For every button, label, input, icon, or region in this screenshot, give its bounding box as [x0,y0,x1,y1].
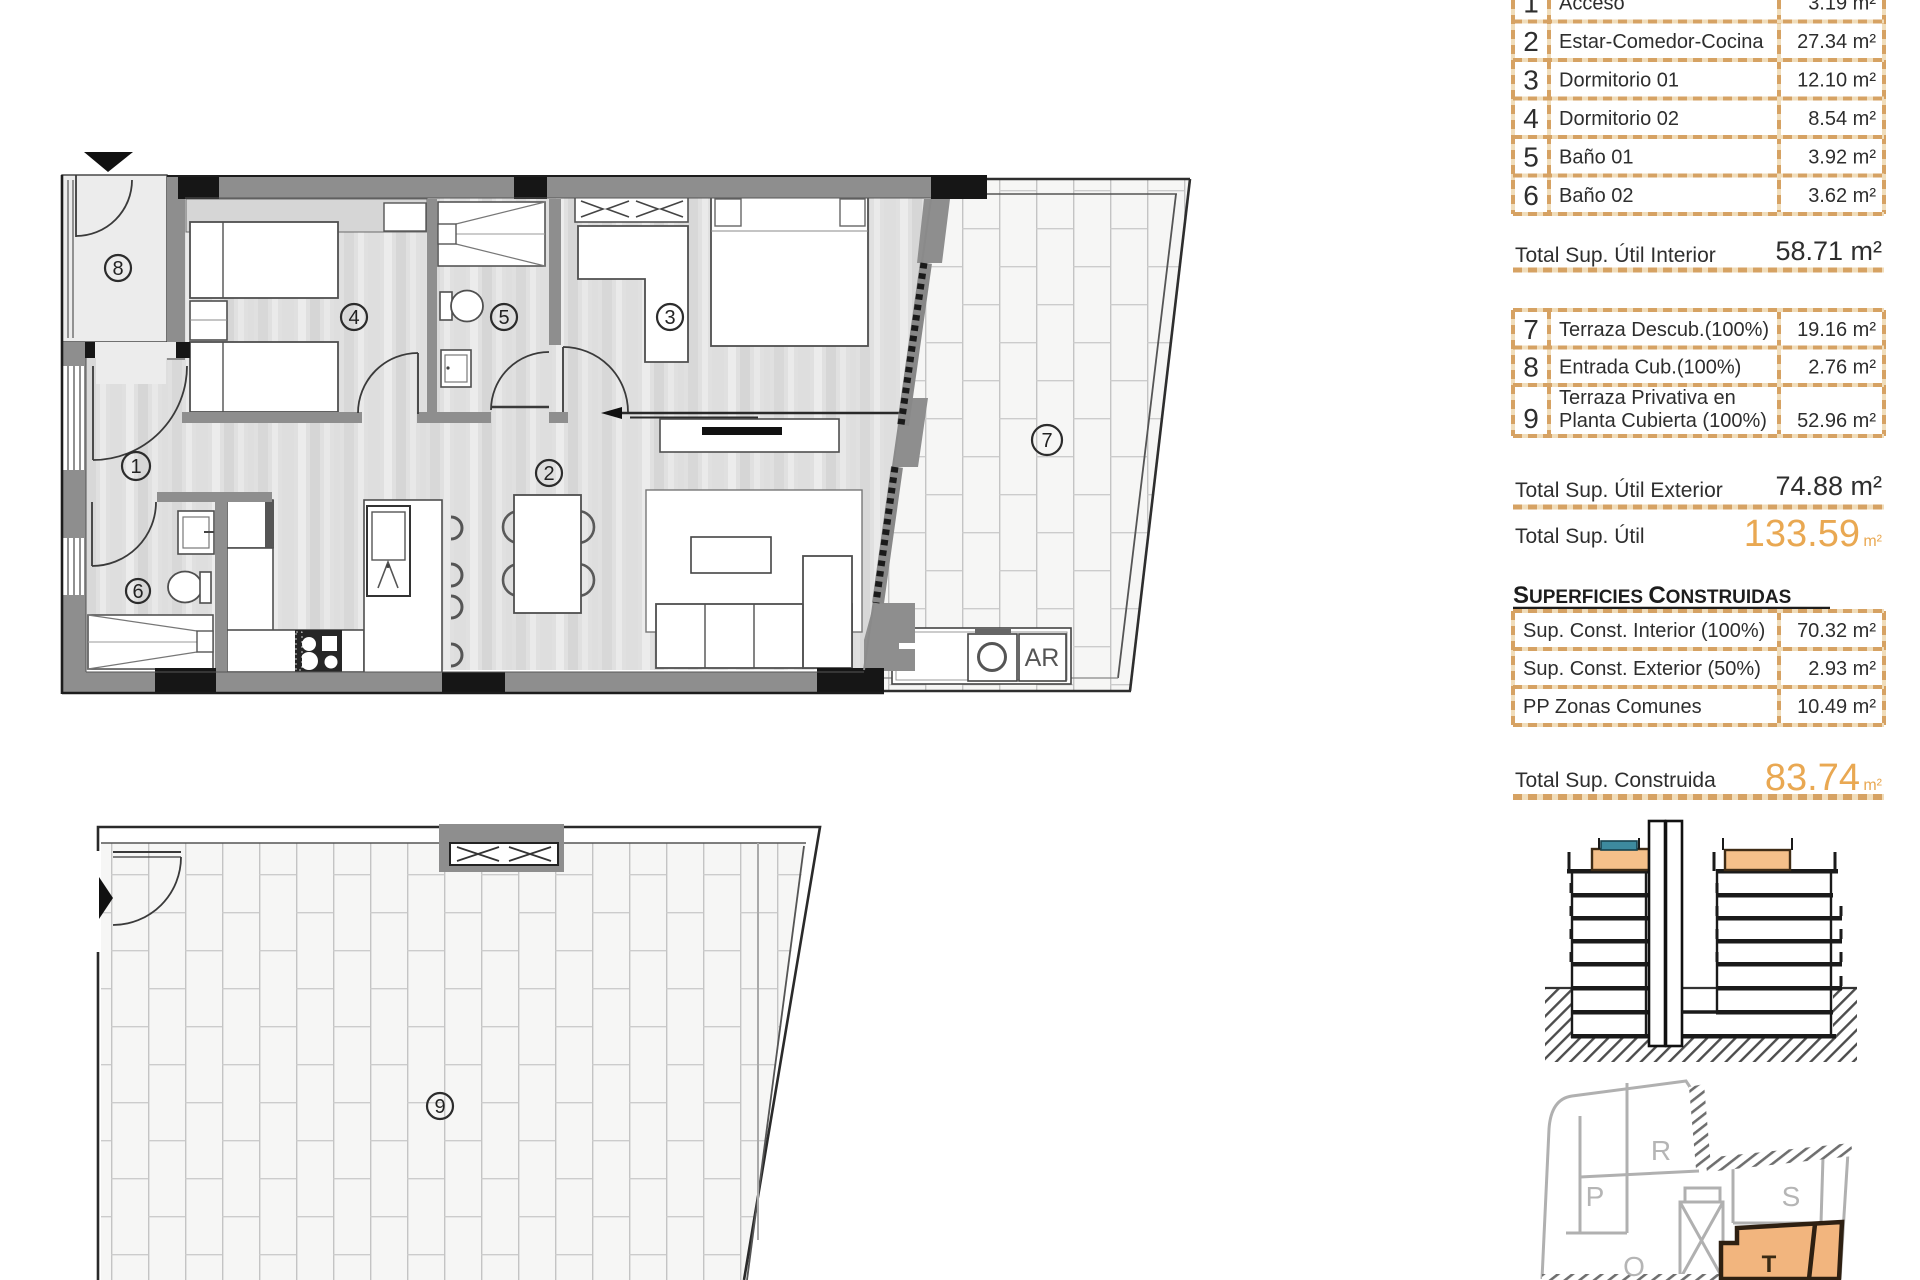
svg-text:Acceso: Acceso [1559,0,1625,14]
svg-text:Baño 01: Baño 01 [1559,146,1634,168]
svg-text:1: 1 [1523,0,1539,18]
svg-text:m²: m² [1863,777,1882,794]
svg-text:P: P [1586,1181,1605,1212]
svg-text:3.92 m²: 3.92 m² [1808,146,1876,168]
svg-text:m²: m² [1863,533,1882,550]
svg-text:52.96 m²: 52.96 m² [1797,410,1876,432]
svg-text:SUPERFICIES CONSTRUIDAS: SUPERFICIES CONSTRUIDAS [1513,582,1791,609]
svg-text:2: 2 [1523,26,1539,57]
svg-text:Total Sup. Útil Interior: Total Sup. Útil Interior [1515,244,1716,267]
svg-text:58.71 m²: 58.71 m² [1775,236,1882,266]
svg-text:T: T [1762,1251,1777,1278]
svg-text:S: S [1782,1181,1801,1212]
svg-text:7: 7 [1041,430,1052,452]
svg-text:3.62 m²: 3.62 m² [1808,185,1876,207]
svg-text:Total Sup. Útil Exterior: Total Sup. Útil Exterior [1515,479,1723,502]
svg-text:PP Zonas Comunes: PP Zonas Comunes [1523,696,1702,718]
svg-text:3.19 m²: 3.19 m² [1808,0,1876,14]
svg-text:4: 4 [348,307,359,329]
svg-text:AR: AR [1025,644,1060,672]
svg-text:R: R [1651,1135,1671,1166]
svg-text:8: 8 [1523,351,1539,382]
svg-text:3: 3 [1523,64,1539,95]
svg-text:74.88 m²: 74.88 m² [1775,471,1882,501]
svg-text:10.49 m²: 10.49 m² [1797,696,1876,718]
svg-text:5: 5 [498,307,509,329]
svg-text:3: 3 [664,307,675,329]
svg-text:2.93 m²: 2.93 m² [1808,658,1876,680]
svg-text:9: 9 [434,1096,445,1118]
svg-text:Terraza Descub.(100%): Terraza Descub.(100%) [1559,319,1769,341]
svg-text:Entrada Cub.(100%): Entrada Cub.(100%) [1559,356,1741,378]
svg-text:7: 7 [1523,314,1539,345]
svg-text:Sup. Const. Exterior (50%): Sup. Const. Exterior (50%) [1523,658,1761,680]
svg-text:12.10 m²: 12.10 m² [1797,69,1876,91]
svg-text:27.34 m²: 27.34 m² [1797,31,1876,53]
svg-text:Dormitorio 02: Dormitorio 02 [1559,108,1679,130]
svg-text:Baño 02: Baño 02 [1559,185,1634,207]
svg-text:1: 1 [130,456,141,478]
svg-text:2: 2 [543,463,554,485]
svg-text:83.74: 83.74 [1765,757,1860,799]
svg-text:6: 6 [1523,180,1539,211]
svg-text:2.76 m²: 2.76 m² [1808,356,1876,378]
svg-text:4: 4 [1523,103,1539,134]
svg-text:Total Sup. Construida: Total Sup. Construida [1515,769,1716,792]
svg-text:Total Sup. Útil: Total Sup. Útil [1515,525,1645,548]
svg-text:8.54 m²: 8.54 m² [1808,108,1876,130]
svg-text:9: 9 [1523,403,1539,434]
svg-text:133.59: 133.59 [1744,513,1860,555]
svg-text:Planta Cubierta (100%): Planta Cubierta (100%) [1559,410,1767,432]
svg-text:19.16 m²: 19.16 m² [1797,319,1876,341]
svg-text:5: 5 [1523,141,1539,172]
svg-text:Dormitorio 01: Dormitorio 01 [1559,69,1679,91]
svg-text:70.32 m²: 70.32 m² [1797,620,1876,642]
svg-text:6: 6 [132,581,143,603]
svg-text:8: 8 [112,258,123,280]
svg-text:O: O [1623,1251,1645,1280]
svg-text:Terraza Privativa en: Terraza Privativa en [1559,387,1736,409]
svg-text:Sup. Const. Interior (100%): Sup. Const. Interior (100%) [1523,620,1765,642]
svg-text:Estar-Comedor-Cocina: Estar-Comedor-Cocina [1559,31,1764,53]
